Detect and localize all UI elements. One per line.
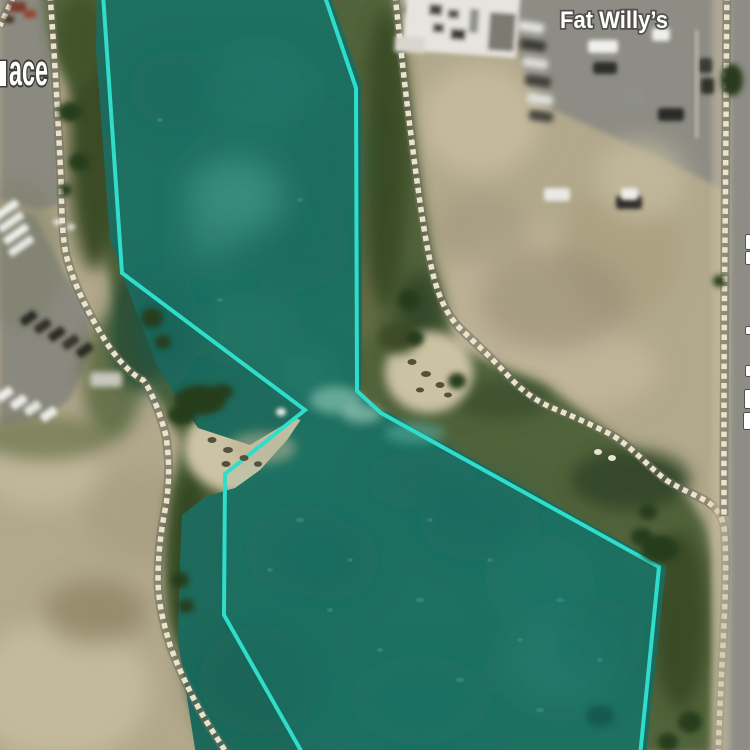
svg-text:Fat Willy’s: Fat Willy’s — [560, 7, 668, 34]
svg-text:ace: ace — [9, 46, 48, 95]
